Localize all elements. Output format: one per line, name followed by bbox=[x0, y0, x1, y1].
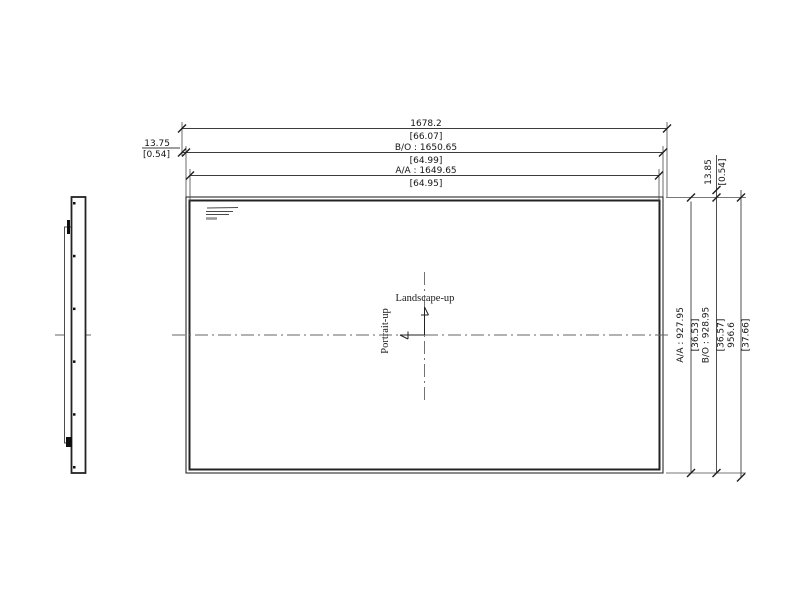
dim-left-offset-mm: 13.75 bbox=[144, 139, 170, 149]
dim-bo-width-mm: B/O : 1650.65 bbox=[395, 143, 457, 153]
dim-bo-height: B/O : 928.95 [36.57] bbox=[702, 155, 727, 477]
front-view: Landscape-up Portrait-up bbox=[172, 197, 672, 473]
side-view-glass-edge bbox=[65, 227, 72, 443]
dim-top-offset-mm: 13.85 bbox=[704, 159, 714, 185]
portrait-up-label: Portrait-up bbox=[380, 308, 391, 354]
dim-aa-width-mm: A/A : 1649.65 bbox=[395, 166, 456, 176]
dim-overall-width-mm: 1678.2 bbox=[410, 119, 442, 129]
side-view-bottom-notch bbox=[66, 437, 72, 447]
drawing-sheet: Landscape-up Portrait-up 1678.2 [66.07] bbox=[0, 0, 800, 600]
dim-top-offset: 13.85 [0.54] bbox=[704, 158, 728, 194]
dim-overall-height-inch: [37.66] bbox=[742, 319, 752, 352]
dim-bo-width-inch: [64.99] bbox=[410, 156, 443, 166]
dim-aa-height-mm: A/A : 927.95 bbox=[676, 307, 686, 363]
landscape-up-label: Landscape-up bbox=[396, 293, 455, 304]
dim-bo-width: B/O : 1650.65 [64.99] bbox=[178, 143, 667, 166]
dim-left-offset-inch: [0.54] bbox=[143, 150, 170, 160]
dim-overall-width: 1678.2 [66.07] bbox=[178, 119, 671, 142]
dim-overall-width-inch: [66.07] bbox=[410, 132, 443, 142]
panel-dimension-drawing: Landscape-up Portrait-up 1678.2 [66.07] bbox=[0, 0, 800, 600]
dim-aa-width: A/A : 1649.65 [64.95] bbox=[186, 166, 663, 189]
right-dimensions: A/A : 927.95 [36.53] B/O : 928.95 [36.57… bbox=[666, 155, 752, 482]
dim-bo-height-inch: [36.57] bbox=[717, 319, 727, 352]
side-view-top-notch bbox=[67, 220, 70, 234]
dim-overall-height-mm: 956.6 bbox=[727, 322, 737, 348]
dim-overall-height: 956.6 [37.66] bbox=[727, 190, 752, 482]
side-view-body bbox=[72, 197, 86, 473]
dim-top-offset-inch: [0.54] bbox=[718, 158, 728, 185]
dim-aa-width-inch: [64.95] bbox=[410, 179, 443, 189]
top-dimensions: 1678.2 [66.07] B/O : 1650.65 [64.99] A/A… bbox=[142, 119, 671, 201]
dim-left-offset: 13.75 [0.54] bbox=[142, 139, 180, 160]
dim-aa-height-inch: [36.53] bbox=[691, 319, 701, 352]
dim-aa-height: A/A : 927.95 [36.53] bbox=[676, 194, 701, 478]
side-view bbox=[55, 197, 95, 473]
dim-bo-height-mm: B/O : 928.95 bbox=[702, 307, 712, 364]
